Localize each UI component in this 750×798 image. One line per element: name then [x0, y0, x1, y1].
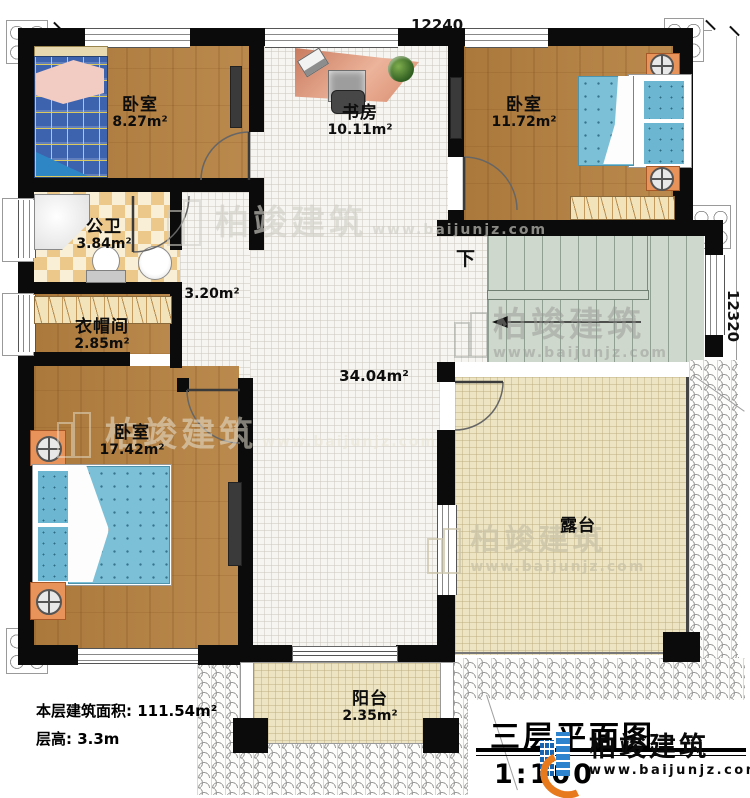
- room-area: 2.35m²: [320, 709, 420, 725]
- room-name: 露台: [528, 517, 628, 536]
- door-arc: [464, 157, 517, 210]
- room-label-balcony: 阳台 2.35m²: [320, 690, 420, 725]
- room-name: 阳台: [320, 690, 420, 709]
- stair-down-arrow: [492, 316, 641, 328]
- room-label-bedroom2: 卧室 11.72m²: [474, 96, 574, 131]
- brand-logo-icon: [540, 732, 582, 784]
- room-name: 衣帽间: [52, 318, 152, 337]
- room-label-bathroom: 公卫 3.84m²: [54, 218, 154, 253]
- room-area: 11.72m²: [474, 115, 574, 131]
- room-label-bedroom3: 卧室 17.42m²: [82, 424, 182, 459]
- door-arc: [455, 382, 503, 430]
- room-label-cloakroom: 衣帽间 2.85m²: [52, 318, 152, 353]
- room-name: 卧室: [82, 424, 182, 443]
- floor-area-info: 本层建筑面积: 111.54m²: [36, 700, 217, 721]
- room-area: 3.20m²: [162, 287, 262, 303]
- floor-area-value: 111.54m²: [137, 702, 217, 720]
- room-label-hall: 34.04m²: [324, 368, 424, 385]
- room-label-corridor: 3.20m²: [162, 287, 262, 303]
- floor-height-label: 层高:: [36, 730, 72, 748]
- brand-name: 柏竣建筑: [589, 732, 750, 763]
- floor-height-value: 3.3m: [77, 730, 119, 748]
- door-arc: [187, 390, 240, 443]
- room-name: 书房: [310, 104, 410, 123]
- room-label-bedroom1: 卧室 8.27m²: [90, 96, 190, 131]
- floor-height-info: 层高: 3.3m: [36, 728, 119, 749]
- brand-logo: 柏竣建筑 www.baijunjz.com: [540, 732, 750, 784]
- room-name: 卧室: [474, 96, 574, 115]
- room-area: 2.85m²: [52, 337, 152, 353]
- room-area: 10.11m²: [310, 123, 410, 139]
- room-area: 34.04m²: [324, 368, 424, 385]
- room-area: 8.27m²: [90, 115, 190, 131]
- floor-plan: 12240 12320: [0, 0, 750, 798]
- room-name: 公卫: [54, 218, 154, 237]
- room-label-study: 书房 10.11m²: [310, 104, 410, 139]
- room-area: 3.84m²: [54, 237, 154, 253]
- floor-area-label: 本层建筑面积:: [36, 702, 132, 720]
- room-area: 17.42m²: [82, 443, 182, 459]
- brand-url: www.baijunjz.com: [589, 763, 750, 778]
- door-arc: [201, 132, 249, 180]
- room-name: 卧室: [90, 96, 190, 115]
- room-label-terrace: 露台: [528, 517, 628, 536]
